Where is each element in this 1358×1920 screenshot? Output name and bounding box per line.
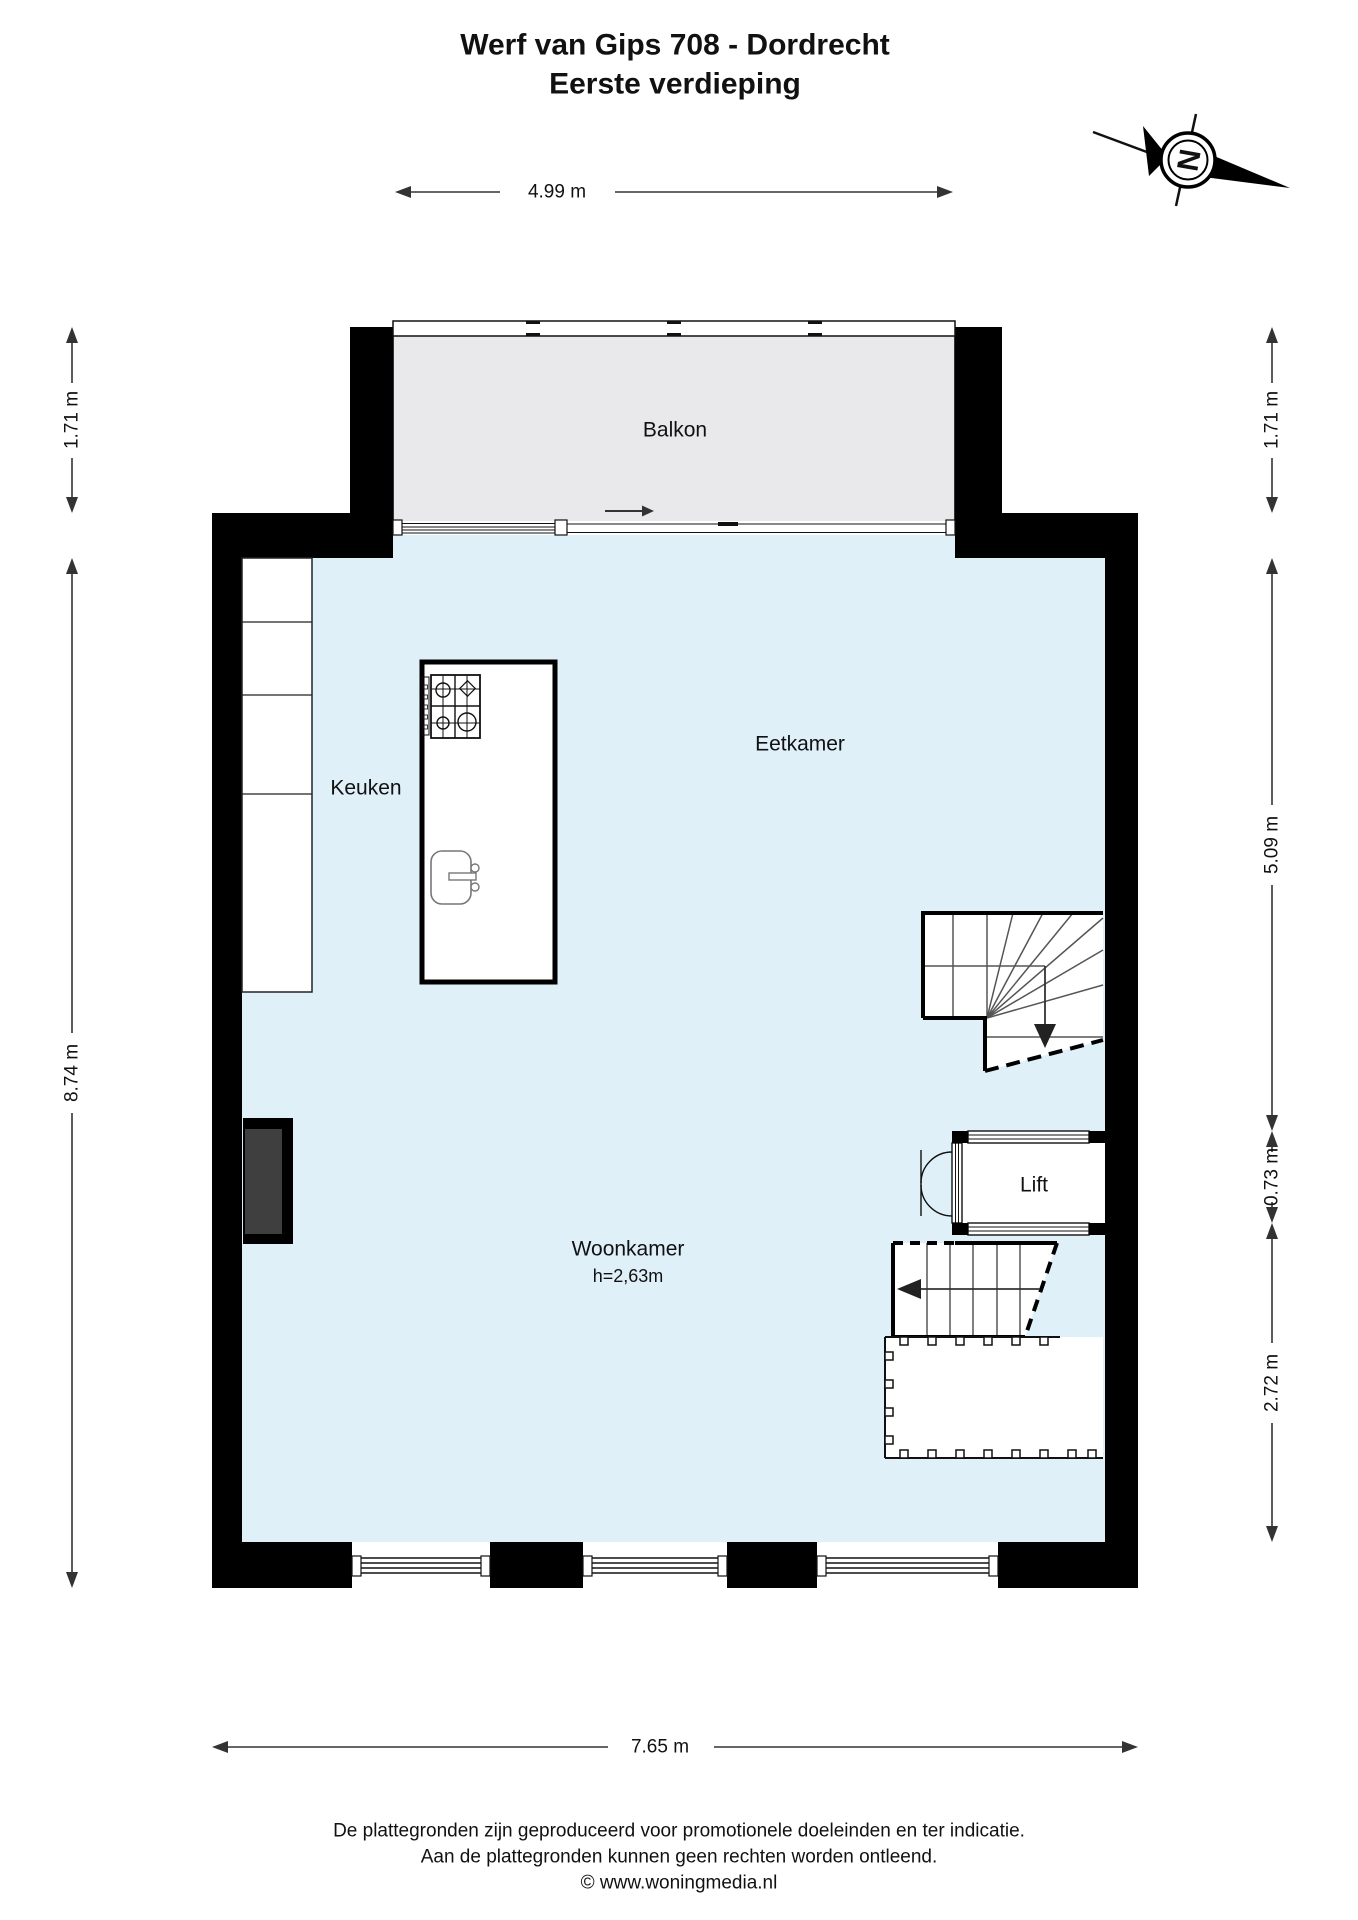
dimension-right-lower-label: 2.72 m — [1262, 1354, 1283, 1412]
footer-disclaimer-line1: De plattegronden zijn geproduceerd voor … — [333, 1821, 1025, 1842]
dimension-top — [395, 186, 953, 198]
room-label-woonkamer-height: h=2,63m — [593, 1266, 664, 1286]
room-label-balkon: Balkon — [643, 419, 707, 442]
footer-disclaimer-line2: Aan de plattegronden kunnen geen rechten… — [421, 1847, 938, 1868]
dimension-left-balcony-label: 1.71 m — [62, 391, 83, 449]
room-label-keuken: Keuken — [330, 777, 401, 800]
floorplan-page: Werf van Gips 708 - Dordrecht Eerste ver… — [0, 0, 1358, 1920]
dimension-bottom-label: 7.65 m — [631, 1737, 689, 1758]
room-label-lift: Lift — [1020, 1174, 1048, 1197]
page-subtitle: Eerste verdieping — [549, 68, 801, 101]
stair-void — [885, 1337, 1103, 1458]
dimension-left-main-label: 8.74 m — [62, 1044, 83, 1102]
dimension-right-upper-label: 5.09 m — [1262, 816, 1283, 874]
room-label-woonkamer: Woonkamer — [572, 1238, 685, 1261]
chimney — [243, 1118, 293, 1244]
dimension-top-label: 4.99 m — [528, 182, 586, 203]
kitchen-counter — [242, 558, 312, 992]
footer-copyright: © www.woningmedia.nl — [581, 1873, 778, 1894]
bottom-windows — [352, 1552, 998, 1580]
page-title: Werf van Gips 708 - Dordrecht — [460, 29, 890, 62]
room-label-eetkamer: Eetkamer — [755, 733, 845, 756]
dimension-right-balcony-label: 1.71 m — [1262, 391, 1283, 449]
dimension-right-lift-label: 0.73 m — [1262, 1148, 1283, 1206]
north-compass-icon: N — [1093, 114, 1290, 206]
kitchen-island — [422, 662, 555, 982]
balcony-railing — [393, 321, 955, 337]
